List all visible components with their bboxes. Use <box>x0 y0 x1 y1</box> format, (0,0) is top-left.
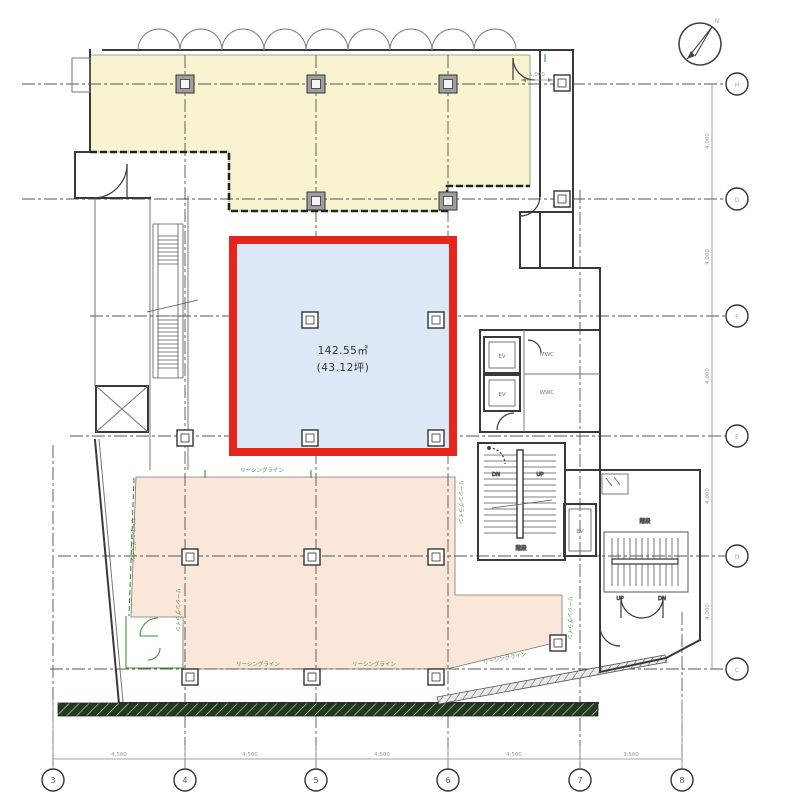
grid-label: F <box>735 314 739 321</box>
leasing-line-label: リーシングライン <box>240 466 284 474</box>
grid-label: 6 <box>445 776 450 785</box>
grid-label: 4 <box>182 776 187 785</box>
stairs-up-label: UP <box>616 596 624 602</box>
leasing-line-label: リーシングライン <box>566 596 574 640</box>
dim-right: 4,000 <box>705 133 711 149</box>
svg-text:1,000: 1,000 <box>529 72 545 78</box>
dim-bottom: 4,500 <box>506 752 522 758</box>
elevator-label: EV <box>498 354 505 360</box>
grid-label: 8 <box>679 776 684 785</box>
dim-right: 4,000 <box>705 249 711 265</box>
stairs-label: 階段 <box>515 544 527 552</box>
grid-label: D <box>735 554 740 561</box>
grid-label: 3 <box>50 776 55 785</box>
leasing-line-label: リーシングライン <box>457 480 465 524</box>
stairs-label: 階段 <box>639 517 651 525</box>
mens-wc-label: MWC <box>540 352 554 358</box>
area-sqm-label: 142.55㎡ <box>318 345 369 357</box>
dim-right: 4,000 <box>705 368 711 384</box>
dim-right: 4,000 <box>705 604 711 620</box>
grid-bubbles-right: H G F E D C <box>726 73 748 680</box>
stairs-down-label: DN <box>492 472 500 478</box>
floor-plan-drawing: 142.55㎡ (43.12坪) <box>0 0 800 798</box>
grid-label: C <box>735 667 739 674</box>
elevator-label: EV <box>498 392 505 398</box>
grid-label: 7 <box>577 776 582 785</box>
dim-right: 4,000 <box>705 488 711 504</box>
lower-tenant-zone <box>131 477 562 669</box>
area-tsubo-label: (43.12坪) <box>317 361 370 374</box>
womens-wc-label: WWC <box>540 390 555 396</box>
north-label: N <box>715 18 720 25</box>
annex-staircase: 階段 UP DN <box>602 474 688 602</box>
grid-bubbles-bottom: 3 4 5 6 7 8 <box>42 769 693 791</box>
dim-bottom: 4,500 <box>111 752 127 758</box>
elevator-label: EV <box>576 529 583 535</box>
stairs-down-label: DN <box>658 596 666 602</box>
leasing-line-label: リーシングライン <box>129 518 137 562</box>
dim-bottom: 4,500 <box>374 752 390 758</box>
leasing-line-label: リーシングライン <box>174 588 182 632</box>
leasing-line-label: リーシングライン <box>236 660 280 668</box>
stairs-up-label: UP <box>536 472 544 478</box>
grid-label: E <box>735 434 739 441</box>
grid-label: H <box>735 82 740 89</box>
grid-label: 5 <box>313 776 318 785</box>
canopy-arcs <box>138 29 516 50</box>
dark-hatched-band <box>58 703 598 716</box>
shaft-x-box <box>96 386 148 432</box>
dim-bottom: 4,500 <box>242 752 258 758</box>
floor-plan-page: 142.55㎡ (43.12坪) <box>0 0 800 798</box>
dim-bottom: 3,500 <box>623 752 639 758</box>
elevator-bank: EV EV <box>484 337 520 411</box>
north-compass-icon: N <box>679 18 721 65</box>
internal-staircase: DN UP 階段 <box>484 446 556 552</box>
grid-label: G <box>735 197 740 204</box>
leasing-line-label: リーシングライン <box>352 660 396 668</box>
escalator <box>147 196 198 470</box>
